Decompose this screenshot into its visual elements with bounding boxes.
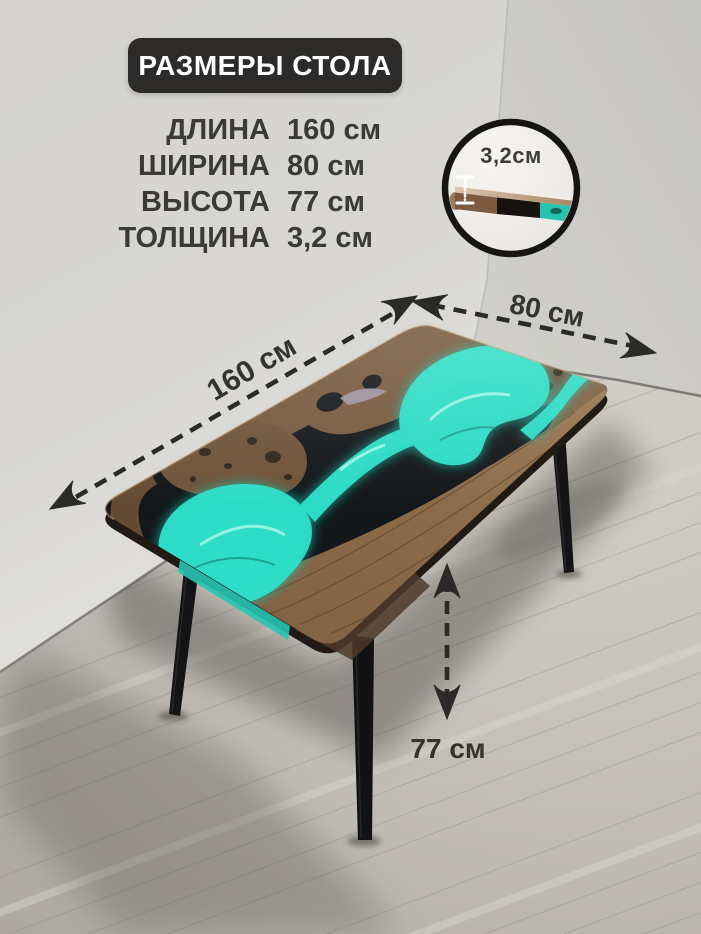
product-dimensions-image: РАЗМЕРЫ СТОЛА ДЛИНА 160 см ШИРИНА 80 см …	[0, 0, 701, 934]
spec-label: ТОЛЩИНА	[80, 220, 270, 256]
inset-slice-marble	[550, 208, 562, 214]
spec-row-height: ВЫСОТА 77 см	[80, 184, 420, 220]
badge-title: РАЗМЕРЫ СТОЛА	[138, 50, 391, 82]
spec-row-length: ДЛИНА 160 см	[80, 112, 420, 148]
dimensions-badge: РАЗМЕРЫ СТОЛА	[128, 38, 402, 93]
spec-row-width: ШИРИНА 80 см	[80, 148, 420, 184]
spec-row-thickness: ТОЛЩИНА 3,2 см	[80, 220, 420, 256]
inset-label: 3,2см	[471, 143, 551, 169]
spec-list: ДЛИНА 160 см ШИРИНА 80 см ВЫСОТА 77 см Т…	[80, 112, 420, 256]
spec-value: 160 см	[287, 112, 381, 148]
spec-value: 80 см	[287, 148, 365, 184]
spec-label: ДЛИНА	[80, 112, 270, 148]
height-label: 77 см	[388, 733, 508, 765]
spec-label: ШИРИНА	[80, 148, 270, 184]
spec-label: ВЫСОТА	[80, 184, 270, 220]
thickness-inset	[445, 122, 580, 254]
spec-value: 3,2 см	[287, 220, 373, 256]
spec-value: 77 см	[287, 184, 365, 220]
